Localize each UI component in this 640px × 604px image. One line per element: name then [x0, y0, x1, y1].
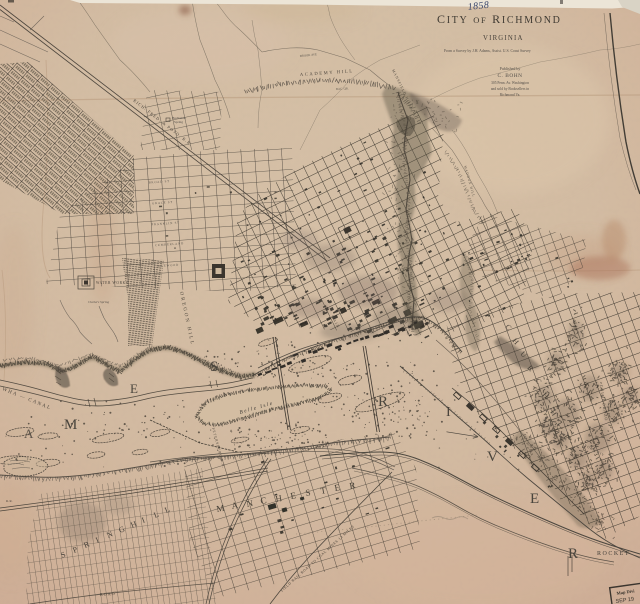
svg-text:C. BOHN: C. BOHN	[497, 73, 522, 79]
svg-text:R. R.: R. R.	[6, 499, 13, 503]
svg-text:A: A	[24, 426, 34, 441]
svg-text:R: R	[378, 394, 388, 410]
svg-text:S: S	[210, 359, 218, 375]
svg-text:CITY OF RICHMOND: CITY OF RICHMOND	[437, 12, 562, 26]
svg-text:M: M	[216, 503, 226, 514]
svg-text:E: E	[530, 491, 539, 507]
svg-text:WATER WORKS: WATER WORKS	[96, 281, 128, 285]
svg-text:E: E	[130, 381, 138, 396]
svg-text:1858: 1858	[467, 0, 490, 13]
svg-text:M: M	[64, 417, 77, 433]
svg-text:BAC. QR.: BAC. QR.	[336, 86, 349, 91]
svg-text:Published by: Published by	[500, 66, 521, 71]
svg-text:305 Penn. Av. Washington: 305 Penn. Av. Washington	[491, 81, 529, 85]
svg-text:Richmond Va.: Richmond Va.	[500, 93, 521, 97]
svg-text:Clarke's Spring: Clarke's Spring	[88, 300, 109, 304]
svg-text:and sold by Booksellers in: and sold by Booksellers in	[491, 87, 529, 91]
svg-text:VIRGINIA: VIRGINIA	[483, 35, 524, 42]
svg-text:V: V	[487, 449, 498, 465]
svg-text:ROCKET: ROCKET	[597, 551, 630, 557]
